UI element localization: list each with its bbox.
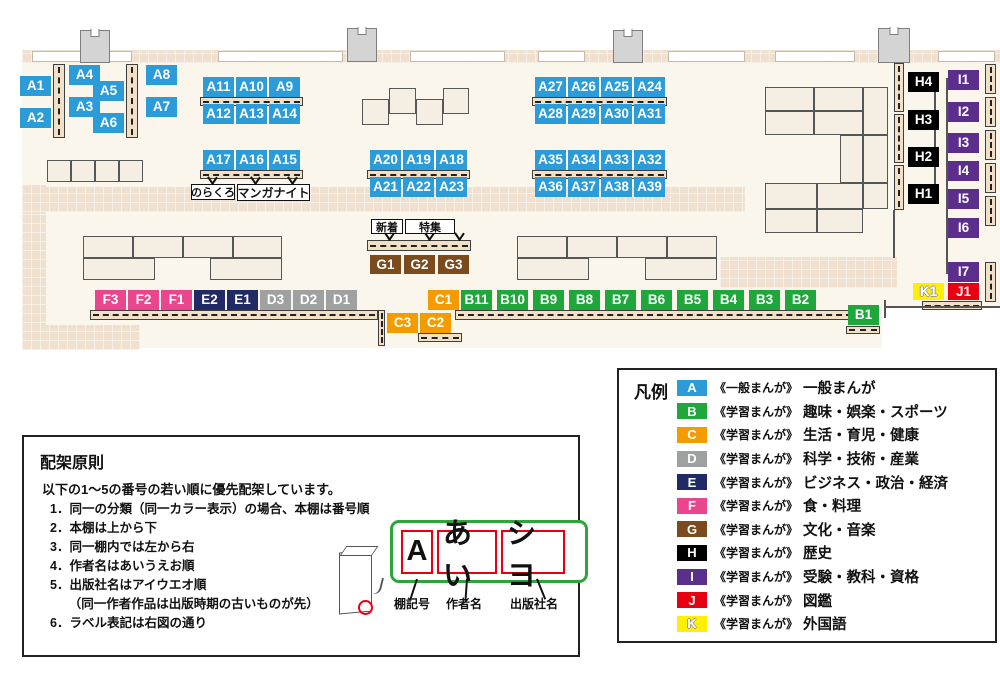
table	[443, 88, 469, 114]
caption-shelf-code: 棚記号	[394, 595, 430, 612]
floor-map-page: A1A2A3A4A5A6A7A8A9A10A11A12A13A14A15A16A…	[0, 0, 1000, 700]
legend-category: 図鑑	[803, 590, 832, 611]
principles-rule: （同一作者作品は出版時期の古いものが先）	[50, 595, 369, 614]
shelf-label-C1: C1	[428, 290, 459, 310]
legend-row-G: G《学習まんが》文化・音楽	[677, 518, 948, 542]
label-location-circle	[358, 600, 373, 615]
legend-badge-J: J	[677, 592, 707, 608]
label-example-part-0: A	[401, 530, 433, 574]
shelf-label-I6: I6	[948, 218, 979, 238]
shelf-label-H3: H3	[908, 110, 939, 130]
legend-badge-A: A	[677, 380, 707, 396]
shelf-label-A21: A21	[370, 177, 401, 197]
legend-category: 文化・音楽	[803, 519, 876, 540]
legend-type: 《一般まんが》	[714, 379, 798, 396]
shelf-label-A7: A7	[146, 97, 177, 117]
caption-publisher-name: 出版社名	[510, 595, 558, 612]
shelf-label-K1: K1	[913, 283, 944, 300]
shelf-label-B11: B11	[461, 290, 492, 310]
shelf-label-D1: D1	[326, 290, 357, 310]
book-shelf	[985, 163, 996, 193]
pillar-notch	[358, 27, 367, 35]
table	[119, 160, 143, 182]
shelf-label-I5: I5	[948, 189, 979, 209]
label-example-part-1: あい	[437, 530, 497, 574]
pillar	[878, 28, 910, 63]
legend-badge-C: C	[677, 427, 707, 443]
legend-type: 《学習まんが》	[714, 474, 798, 491]
shelf-label-A2: A2	[20, 108, 51, 128]
shelf-label-B5: B5	[677, 290, 708, 310]
table	[814, 87, 863, 111]
shelf-label-I3: I3	[948, 133, 979, 153]
shelf-label-H2: H2	[908, 147, 939, 167]
shelf-label-A12: A12	[203, 104, 234, 124]
legend-panel: 凡例 A《一般まんが》一般まんがB《学習まんが》趣味・娯楽・スポーツC《学習まん…	[617, 368, 997, 643]
legend-row-I: I《学習まんが》受験・教科・資格	[677, 565, 948, 589]
label-example-part-2: シヨ	[501, 530, 565, 574]
shelf-label-A31: A31	[634, 104, 665, 124]
shelf-label-A28: A28	[535, 104, 566, 124]
shelf-label-B4: B4	[713, 290, 744, 310]
legend-category: 趣味・娯楽・スポーツ	[803, 401, 948, 422]
legend-row-E: E《学習まんが》ビジネス・政治・経済	[677, 470, 948, 494]
shelf-label-A1: A1	[20, 76, 51, 96]
legend-type: 《学習まんが》	[714, 403, 798, 420]
legend-row-F: F《学習まんが》食・料理	[677, 494, 948, 518]
principles-rule: 1．同一の分類（同一カラー表示）の場合、本棚は番号順	[50, 500, 369, 519]
shelf-label-A18: A18	[436, 150, 467, 170]
shelf-label-B8: B8	[569, 290, 600, 310]
table	[183, 236, 233, 258]
shelf-label-D3: D3	[260, 290, 291, 310]
callout-noracro: のらくろ	[191, 184, 235, 200]
book-shelf	[455, 310, 855, 320]
pillar	[80, 30, 110, 63]
book-shelf	[894, 114, 904, 163]
legend-row-D: D《学習まんが》科学・技術・産業	[677, 447, 948, 471]
shelf-label-A24: A24	[634, 77, 665, 97]
legend-category: 外国語	[803, 613, 847, 634]
shelf-label-C2: C2	[420, 313, 451, 333]
window	[668, 51, 745, 62]
shelf-label-B9: B9	[533, 290, 564, 310]
shelf-label-B6: B6	[641, 290, 672, 310]
shelf-label-A14: A14	[269, 104, 300, 124]
table	[817, 209, 863, 233]
shelf-label-A34: A34	[568, 150, 599, 170]
legend-badge-I: I	[677, 569, 707, 585]
book-shelf	[985, 130, 996, 160]
legend-title: 凡例	[634, 378, 668, 403]
shelf-label-A20: A20	[370, 150, 401, 170]
table	[133, 236, 183, 258]
legend-category: 生活・育児・健康	[803, 424, 919, 445]
book-shelf	[367, 240, 471, 251]
legend-type: 《学習まんが》	[714, 426, 798, 443]
shelf-label-H1: H1	[908, 184, 939, 204]
shelf-label-J1: J1	[948, 283, 979, 300]
table	[840, 135, 863, 183]
legend-category: 一般まんが	[803, 377, 876, 398]
legend-type: 《学習まんが》	[714, 568, 798, 585]
pillar-notch	[624, 29, 633, 37]
shelf-label-C3: C3	[387, 313, 418, 333]
callout-feature: 特集	[405, 219, 455, 234]
book-shelf	[126, 64, 138, 138]
legend-badge-B: B	[677, 403, 707, 419]
shelf-label-I7: I7	[948, 262, 979, 282]
legend-category: 歴史	[803, 542, 832, 563]
table	[863, 135, 888, 183]
window	[410, 51, 505, 62]
shelf-label-G3: G3	[438, 255, 469, 274]
shelf-label-A22: A22	[403, 177, 434, 197]
book-shelf	[985, 262, 996, 302]
shelf-label-A8: A8	[146, 65, 177, 85]
legend-row-J: J《学習まんが》図鑑	[677, 588, 948, 612]
shelf-label-A32: A32	[634, 150, 665, 170]
shelf-label-G1: G1	[370, 255, 401, 274]
principles-rule: 4．作者名はあいうえお順	[50, 557, 369, 576]
shelf-label-A11: A11	[203, 77, 234, 97]
table	[645, 258, 717, 280]
table	[389, 88, 416, 114]
book-shelf	[378, 310, 385, 346]
principles-intro: 以下の1～5の番号の若い順に優先配架しています。	[42, 479, 341, 498]
shelf-label-A26: A26	[568, 77, 599, 97]
pillar	[347, 28, 377, 62]
table	[95, 160, 119, 182]
legend-category: 受験・教科・資格	[803, 566, 919, 587]
shelf-label-A15: A15	[269, 150, 300, 170]
legend-rows: A《一般まんが》一般まんがB《学習まんが》趣味・娯楽・スポーツC《学習まんが》生…	[677, 376, 948, 636]
table	[210, 258, 282, 280]
table	[47, 160, 71, 182]
wall-line	[884, 300, 886, 318]
shelf-label-B1: B1	[848, 305, 879, 325]
legend-row-A: A《一般まんが》一般まんが	[677, 376, 948, 400]
table	[863, 183, 888, 209]
table	[667, 236, 717, 258]
table	[83, 236, 133, 258]
legend-badge-F: F	[677, 498, 707, 514]
book-shelf	[418, 333, 462, 342]
legend-badge-K: K	[677, 616, 707, 632]
table	[362, 99, 389, 125]
wall-line	[934, 82, 936, 198]
wall-line	[893, 210, 895, 258]
shelf-label-E1: E1	[227, 290, 258, 310]
table	[817, 183, 863, 209]
table	[517, 258, 589, 280]
principles-rules: 1．同一の分類（同一カラー表示）の場合、本棚は番号順2．本棚は上から下3．同一棚…	[50, 500, 369, 633]
table	[863, 87, 888, 135]
book-shelf	[985, 64, 996, 94]
shelf-label-A30: A30	[601, 104, 632, 124]
wall-line	[884, 306, 1000, 308]
table	[517, 236, 567, 258]
shelf-label-F2: F2	[128, 290, 159, 310]
book-shelf	[894, 165, 904, 210]
legend-row-K: K《学習まんが》外国語	[677, 612, 948, 636]
shelf-label-A23: A23	[436, 177, 467, 197]
shelf-label-A35: A35	[535, 150, 566, 170]
legend-category: 科学・技術・産業	[803, 448, 919, 469]
walkway	[720, 257, 897, 288]
legend-category: ビジネス・政治・経済	[803, 472, 948, 493]
shelf-label-A10: A10	[236, 77, 267, 97]
legend-row-B: B《学習まんが》趣味・娯楽・スポーツ	[677, 400, 948, 424]
pillar-notch	[890, 27, 899, 35]
shelf-label-A6: A6	[93, 113, 124, 133]
shelf-label-B10: B10	[497, 290, 528, 310]
shelf-label-A16: A16	[236, 150, 267, 170]
legend-type: 《学習まんが》	[714, 615, 798, 632]
shelf-label-A38: A38	[601, 177, 632, 197]
walkway	[22, 325, 140, 350]
book-shelf	[985, 196, 996, 226]
pillar	[613, 30, 643, 63]
table	[71, 160, 95, 182]
callout-new-arrivals: 新着	[371, 219, 403, 234]
principles-rule: 5．出版社名はアイウエオ順	[50, 576, 369, 595]
table	[765, 209, 817, 233]
principles-rule: 3．同一棚内では左から右	[50, 538, 369, 557]
window	[938, 51, 995, 62]
shelf-label-A36: A36	[535, 177, 566, 197]
shelf-label-G2: G2	[404, 255, 435, 274]
shelf-label-A9: A9	[269, 77, 300, 97]
legend-type: 《学習まんが》	[714, 544, 798, 561]
shelf-label-D2: D2	[293, 290, 324, 310]
table	[765, 183, 817, 209]
shelf-label-E2: E2	[194, 290, 225, 310]
legend-type: 《学習まんが》	[714, 450, 798, 467]
shelf-label-F3: F3	[95, 290, 126, 310]
window	[218, 51, 343, 62]
table	[814, 111, 863, 135]
shelf-label-A13: A13	[236, 104, 267, 124]
table	[765, 87, 814, 111]
shelf-label-A27: A27	[535, 77, 566, 97]
book-shelf	[985, 97, 996, 127]
shelf-label-B7: B7	[605, 290, 636, 310]
shelf-label-A33: A33	[601, 150, 632, 170]
book-shelf	[846, 326, 880, 334]
legend-badge-E: E	[677, 474, 707, 490]
book-shelf	[53, 64, 65, 138]
caption-author-name: 作者名	[446, 595, 482, 612]
shelf-label-I1: I1	[948, 70, 979, 90]
shelf-label-A25: A25	[601, 77, 632, 97]
shelf-label-F1: F1	[161, 290, 192, 310]
shelf-label-A37: A37	[568, 177, 599, 197]
legend-type: 《学習まんが》	[714, 497, 798, 514]
legend-row-H: H《学習まんが》歴史	[677, 541, 948, 565]
book-shelf	[90, 310, 378, 320]
principles-rule: 2．本棚は上から下	[50, 519, 369, 538]
table	[567, 236, 617, 258]
principles-title: 配架原則	[40, 449, 104, 473]
table	[83, 258, 155, 280]
window	[775, 51, 855, 62]
shelf-label-I2: I2	[948, 102, 979, 122]
window	[538, 51, 585, 62]
table	[233, 236, 282, 258]
legend-badge-H: H	[677, 545, 707, 561]
pillar-notch	[91, 29, 100, 37]
shelf-label-A29: A29	[568, 104, 599, 124]
label-example: Aあいシヨ	[390, 520, 588, 583]
book-ribbon	[372, 576, 384, 595]
table	[416, 99, 443, 125]
shelf-label-A17: A17	[203, 150, 234, 170]
shelf-label-B2: B2	[785, 290, 816, 310]
legend-type: 《学習まんが》	[714, 592, 798, 609]
principles-rule: 6．ラベル表記は右図の通り	[50, 614, 369, 633]
legend-category: 食・料理	[803, 495, 861, 516]
legend-type: 《学習まんが》	[714, 521, 798, 538]
table	[765, 111, 814, 135]
shelf-label-B3: B3	[749, 290, 780, 310]
shelf-label-H4: H4	[908, 72, 939, 92]
shelf-label-A39: A39	[634, 177, 665, 197]
book-top-edge	[339, 546, 378, 556]
table	[617, 236, 667, 258]
callout-manga-night: マンガナイト	[237, 184, 310, 201]
shelf-label-A5: A5	[93, 81, 124, 101]
legend-badge-G: G	[677, 521, 707, 537]
shelf-label-A19: A19	[403, 150, 434, 170]
legend-row-C: C《学習まんが》生活・育児・健康	[677, 423, 948, 447]
legend-badge-D: D	[677, 451, 707, 467]
shelf-label-I4: I4	[948, 161, 979, 181]
principles-panel: 配架原則 以下の1～5の番号の若い順に優先配架しています。 1．同一の分類（同一…	[22, 435, 580, 657]
book-shelf	[894, 63, 904, 112]
